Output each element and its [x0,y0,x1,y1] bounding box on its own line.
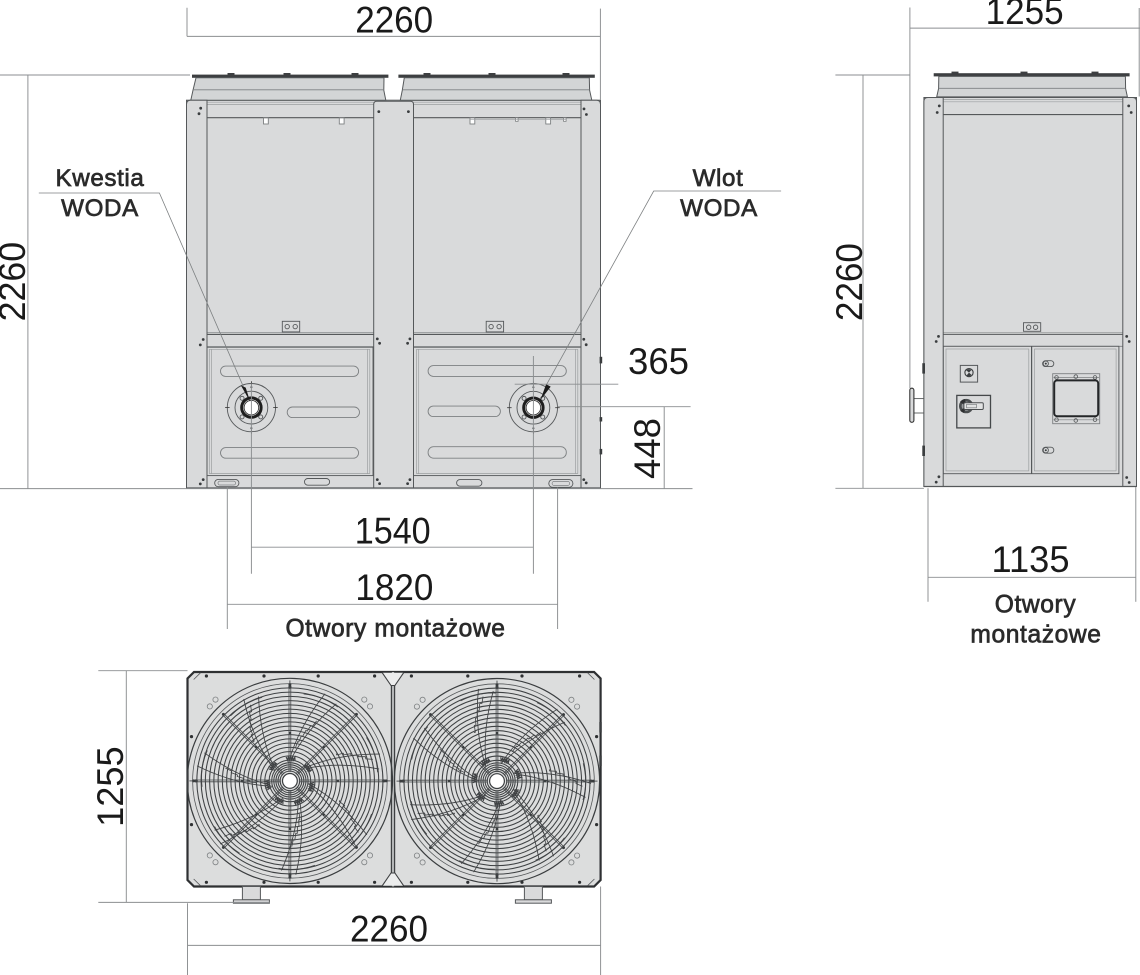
svg-text:Otwory: Otwory [995,591,1077,618]
svg-text:1255: 1255 [986,0,1064,32]
svg-text:1820: 1820 [355,567,433,608]
svg-text:montażowe: montażowe [970,621,1101,648]
svg-text:448: 448 [627,418,668,479]
svg-text:Otwory montażowe: Otwory montażowe [285,616,505,643]
svg-text:1540: 1540 [355,510,431,551]
svg-text:2260: 2260 [350,908,428,949]
svg-text:WODA: WODA [680,195,758,222]
svg-text:Wlot: Wlot [693,165,744,192]
svg-text:WODA: WODA [61,195,139,222]
svg-text:2260: 2260 [355,0,433,41]
svg-text:1135: 1135 [992,539,1070,580]
svg-text:2260: 2260 [829,243,870,321]
svg-text:2260: 2260 [0,242,33,322]
svg-text:1255: 1255 [90,746,131,827]
svg-text:Kwestia: Kwestia [56,165,145,192]
svg-text:365: 365 [628,341,689,382]
